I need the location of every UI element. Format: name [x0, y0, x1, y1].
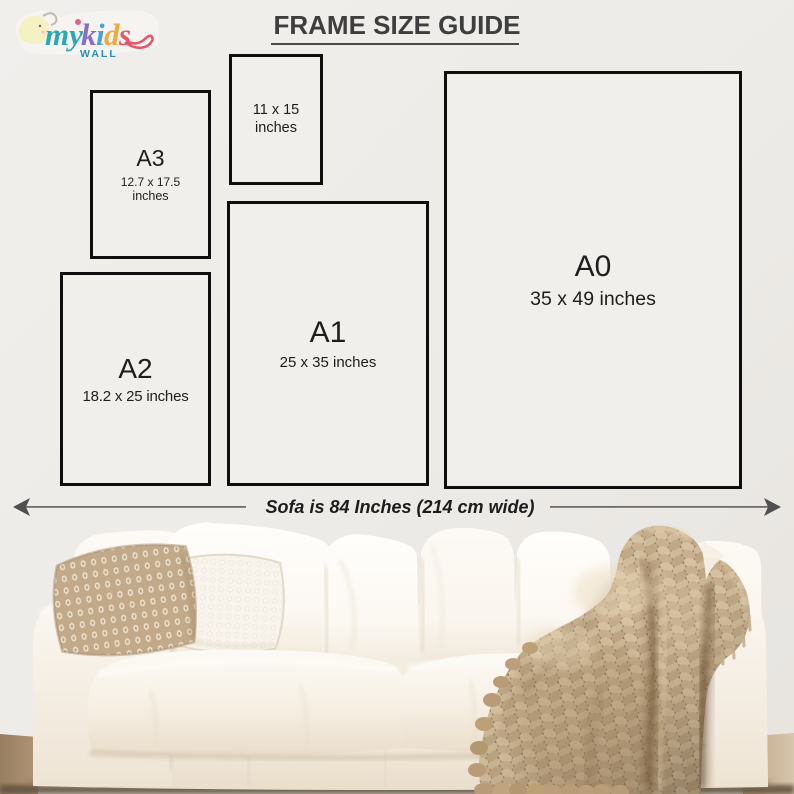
svg-text:WALL: WALL: [80, 48, 118, 60]
svg-text:Sofa is 84 Inches (214 cm wide: Sofa is 84 Inches (214 cm wide): [265, 497, 534, 517]
